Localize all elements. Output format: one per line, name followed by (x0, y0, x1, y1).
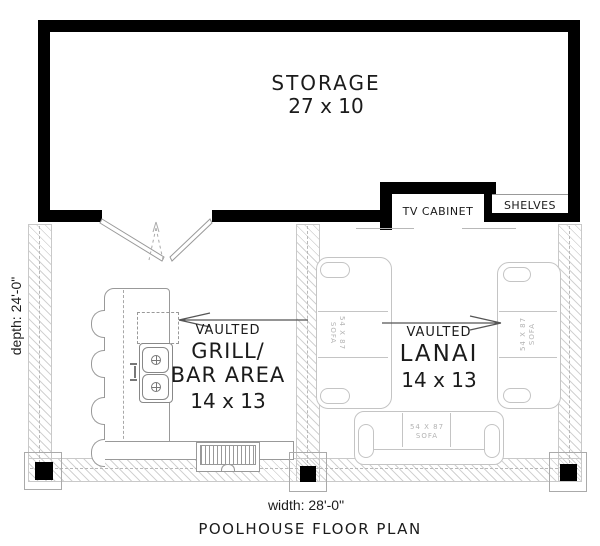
lanai-room-label: VAULTED LANAI 14 x 13 (377, 326, 501, 392)
lanai-size: 14 x 13 (377, 369, 501, 392)
storage-name: STORAGE (226, 72, 426, 95)
sofa-arm-cushion (484, 424, 500, 458)
sofa-label-text: SOFA (387, 432, 467, 441)
sofa-label: 54 X 87 SOFA (328, 303, 346, 363)
grill-handle (221, 464, 235, 471)
tv-cabinet-label: TV CABINET (392, 194, 484, 228)
width-dimension-label: width: 28'-0" (196, 497, 416, 513)
sofa-label: 54 X 87 SOFA (387, 423, 467, 441)
storage-room-label: STORAGE 27 x 10 (226, 72, 426, 118)
grill-grate (200, 445, 256, 465)
counter-overhang-line (123, 290, 124, 454)
post (560, 464, 577, 481)
bar-stool (91, 350, 105, 378)
wall-centerline (39, 226, 40, 478)
sofa-size-text: 54 X 87 (337, 303, 346, 363)
sofa-label: 54 X 87 SOFA (519, 304, 537, 364)
wall-centerline (569, 226, 570, 478)
french-doors (94, 214, 218, 266)
grill-size: 14 x 13 (150, 390, 306, 413)
sink-faucet-icon (130, 379, 137, 381)
sofa-arm-cushion (320, 388, 350, 404)
ledge-line (462, 228, 516, 229)
storage-wall-top (38, 20, 580, 32)
tv-cabinet-back-wall (380, 182, 496, 194)
sofa-cushion-line (368, 449, 488, 450)
shelves-label: SHELVES (492, 194, 568, 213)
sink-faucet-icon (134, 366, 136, 378)
grill-name-line1: GRILL/ (150, 339, 306, 363)
grill-name-line2: BAR AREA (150, 363, 306, 387)
lanai-vaulted-text: VAULTED (377, 326, 501, 341)
wall-centerline (307, 226, 308, 478)
sofa-arm-cushion (503, 388, 531, 403)
storage-wall-right (568, 20, 580, 222)
sink-faucet-icon (130, 363, 137, 365)
sofa-arm-cushion (320, 262, 350, 278)
grill-vaulted-text: VAULTED (150, 324, 306, 339)
storage-wall-bottom-center (212, 210, 384, 222)
tv-cabinet-side-wall (380, 182, 392, 230)
poolhouse-floor-plan: 54 X 87 SOFA 54 X 87 SOFA 54 X 87 SOFA (0, 0, 600, 546)
sofa-size-text: 54 X 87 (387, 423, 467, 432)
sofa-size-text: 54 X 87 (519, 304, 528, 364)
lanai-name: LANAI (377, 341, 501, 367)
sofa-label-text: SOFA (328, 303, 337, 363)
grill-bar-room-label: VAULTED GRILL/ BAR AREA 14 x 13 (150, 324, 306, 413)
sofa-arm-cushion (358, 424, 374, 458)
plan-title: POOLHOUSE FLOOR PLAN (170, 520, 450, 538)
storage-wall-bottom-left (38, 210, 102, 222)
bar-stool (91, 397, 105, 425)
post (300, 466, 316, 482)
depth-dimension-label: depth: 24'-0" (8, 266, 24, 366)
storage-size: 27 x 10 (226, 95, 426, 118)
screen-wall-right (558, 224, 582, 482)
screen-wall-left (28, 224, 52, 482)
storage-wall-left (38, 20, 50, 222)
bar-stool (91, 310, 105, 338)
ledge-line (356, 228, 414, 229)
sofa-label-text: SOFA (528, 304, 537, 364)
sofa-arm-cushion (503, 267, 531, 282)
post (35, 462, 53, 480)
